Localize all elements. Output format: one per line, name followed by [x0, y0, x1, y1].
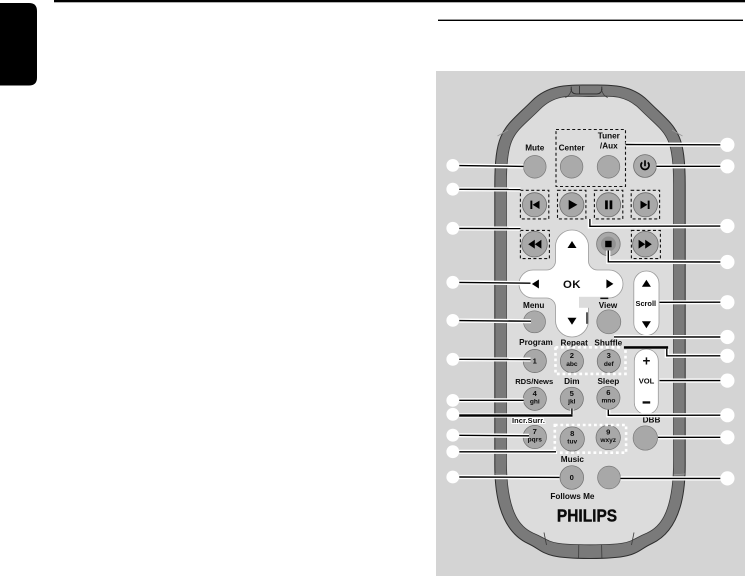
svg-text:Program: Program	[519, 338, 553, 347]
svg-text:RDS/News: RDS/News	[515, 377, 553, 386]
svg-text:def: def	[604, 361, 615, 368]
svg-text:Sleep: Sleep	[597, 377, 619, 386]
svg-text:Menu: Menu	[523, 301, 544, 310]
svg-text:mno: mno	[601, 397, 615, 404]
svg-text:Music: Music	[561, 455, 585, 464]
svg-text:View: View	[599, 301, 618, 310]
svg-text:2: 2	[570, 351, 574, 360]
svg-text:6: 6	[606, 388, 610, 397]
svg-text:wxyz: wxyz	[599, 437, 616, 444]
svg-text:9: 9	[606, 428, 610, 437]
svg-text:7: 7	[533, 427, 537, 436]
svg-text:PHILIPS: PHILIPS	[557, 505, 617, 525]
svg-text:VOL: VOL	[639, 377, 655, 386]
svg-text:/Aux: /Aux	[600, 142, 618, 151]
svg-text:0: 0	[570, 473, 574, 482]
svg-text:Tuner: Tuner	[598, 132, 621, 141]
svg-text:jkl: jkl	[567, 398, 575, 405]
svg-text:tuv: tuv	[567, 439, 577, 446]
svg-text:OK: OK	[563, 279, 581, 291]
svg-text:pqrs: pqrs	[528, 437, 543, 444]
svg-text:abc: abc	[566, 361, 578, 368]
svg-text:Follows Me: Follows Me	[550, 492, 595, 501]
svg-text:3: 3	[607, 351, 611, 360]
svg-text:Center: Center	[559, 143, 586, 152]
svg-text:8: 8	[570, 429, 574, 438]
svg-text:Dim: Dim	[564, 377, 579, 386]
svg-text:+: +	[642, 354, 650, 369]
svg-text:Mute: Mute	[525, 143, 545, 152]
svg-text:Scroll: Scroll	[636, 299, 657, 308]
svg-text:ghi: ghi	[530, 398, 540, 405]
